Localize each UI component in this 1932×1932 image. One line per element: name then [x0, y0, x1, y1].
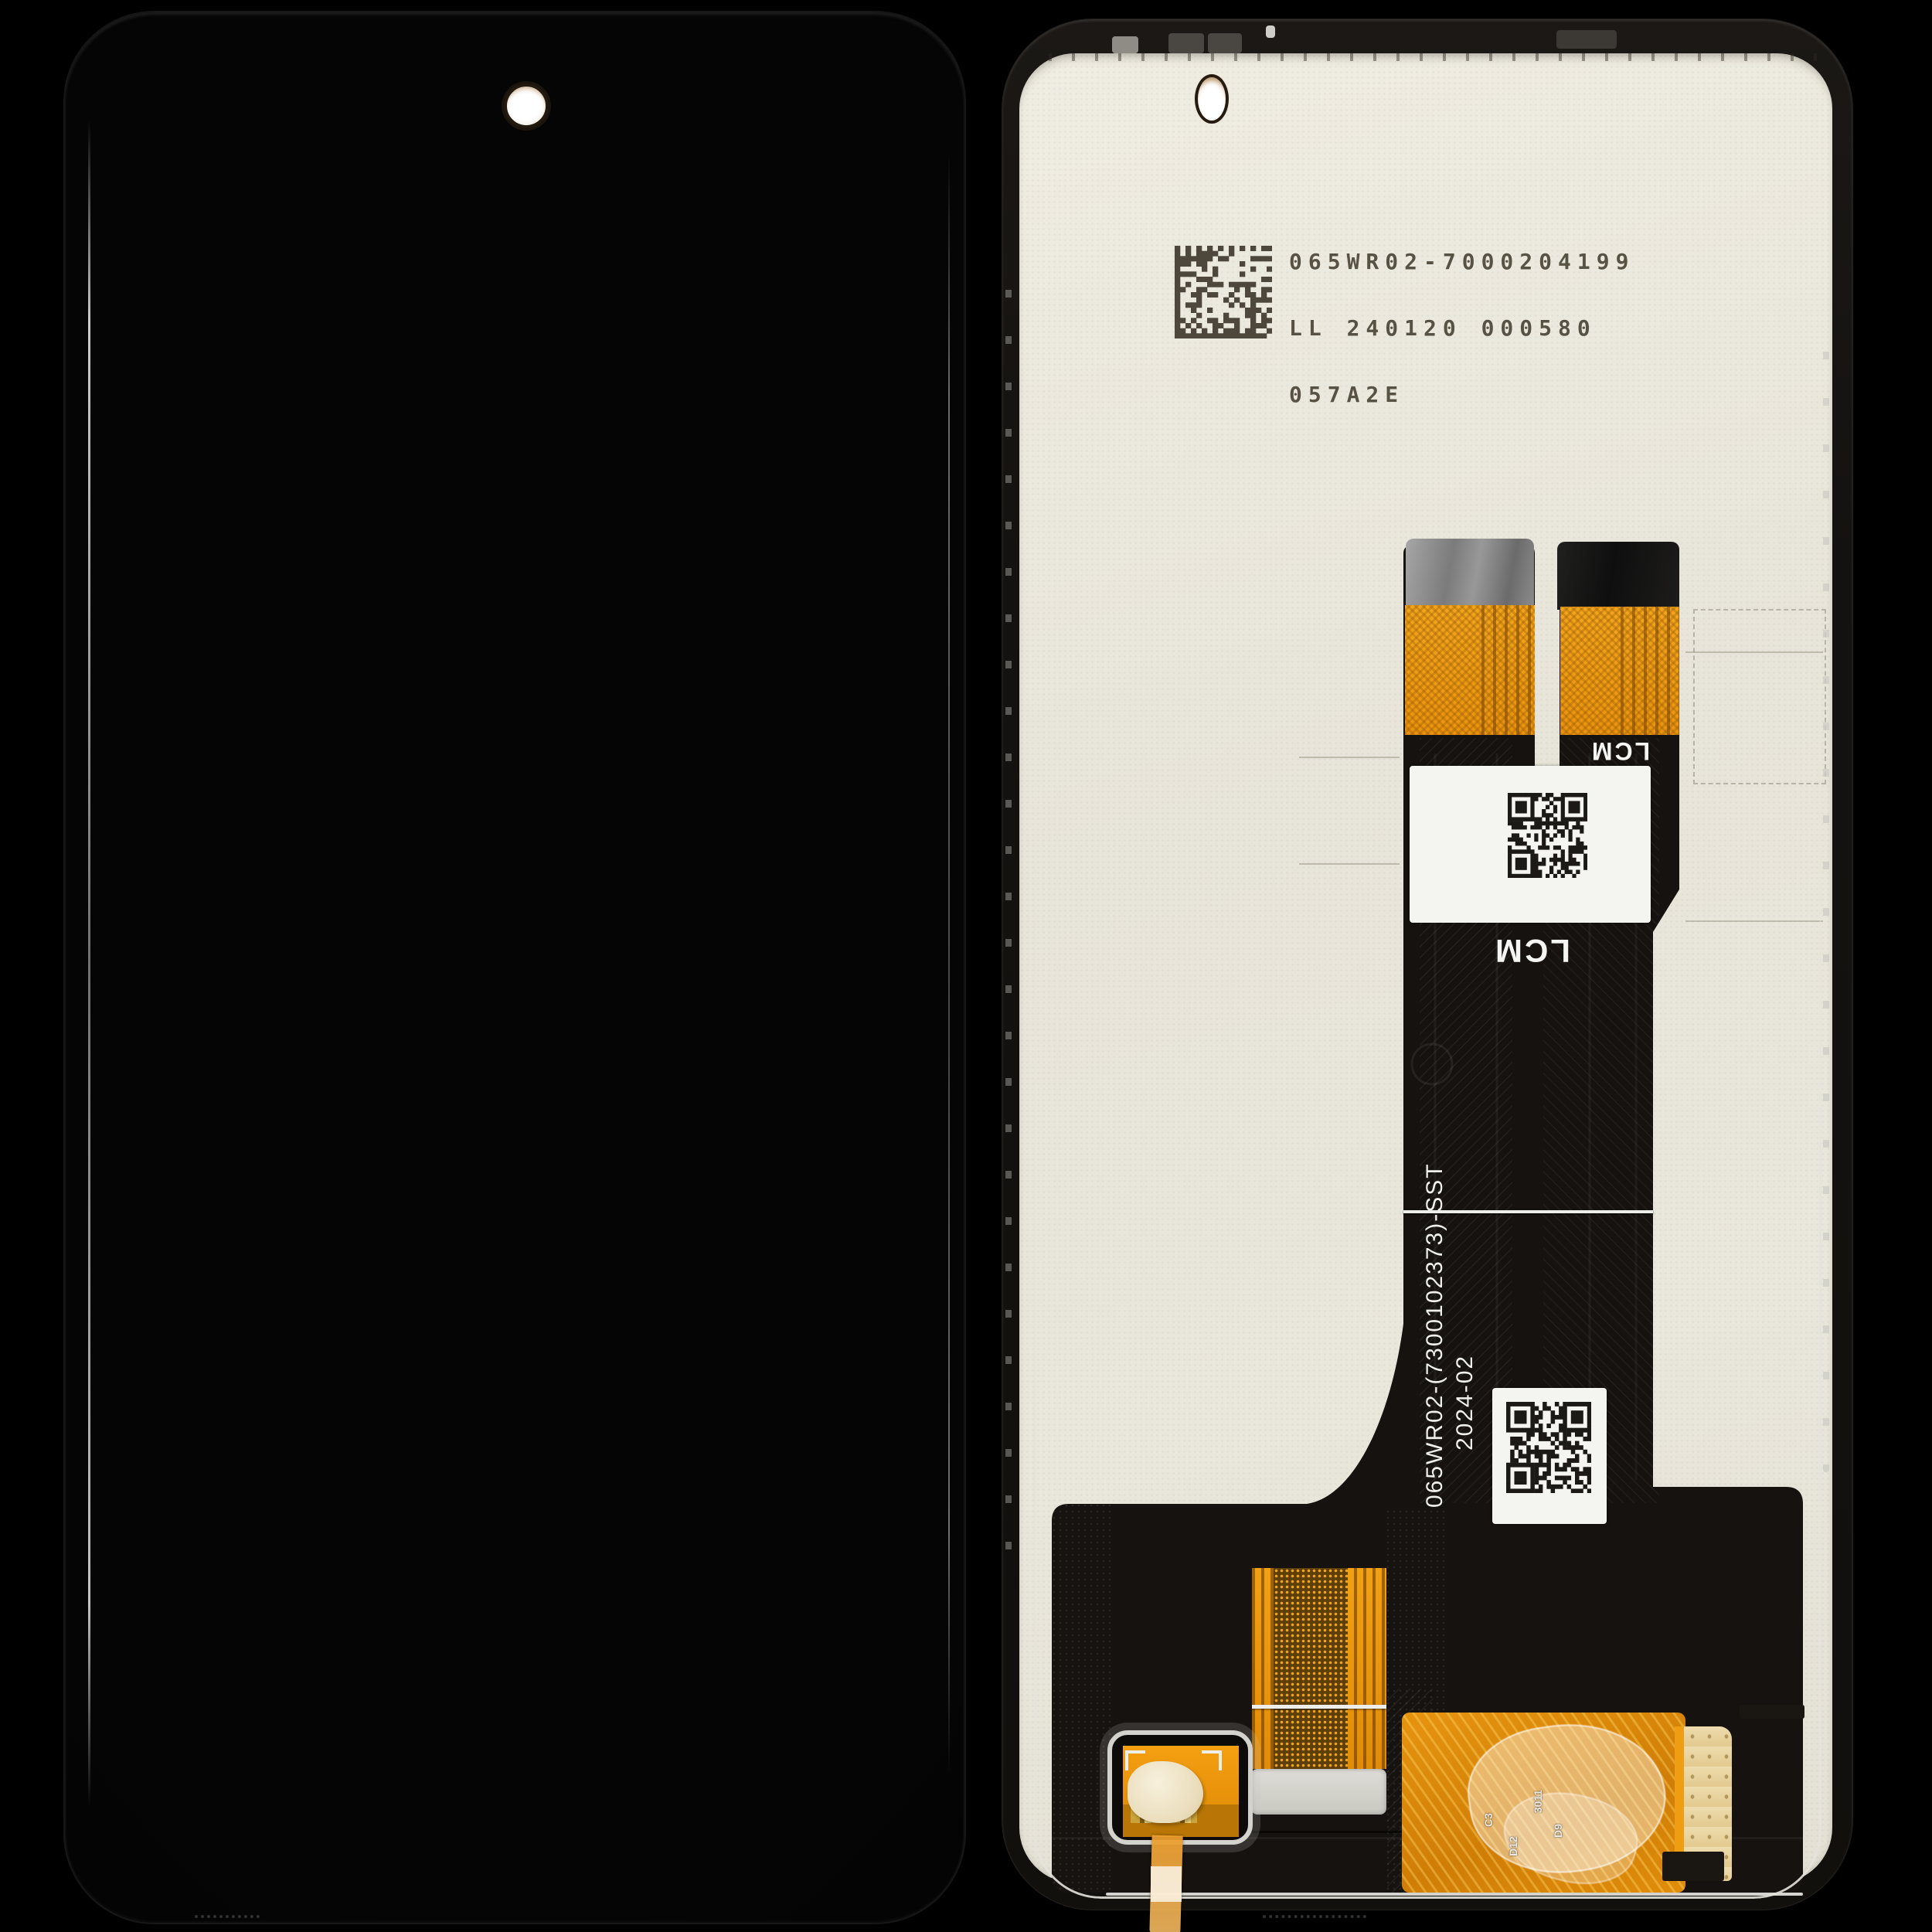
front-camera-hole-icon [504, 83, 549, 128]
flex-tail-band [1151, 1866, 1182, 1902]
lcd-back-panel: 065WR02-7000204199 LL 240120 000580 057A… [1002, 19, 1853, 1910]
right-edge-clips [1823, 313, 1829, 1472]
product-photo-lcd-assembly: 065WR02-7000204199 LL 240120 000580 057A… [0, 0, 1932, 1932]
left-edge-clips [1005, 251, 1012, 1565]
inner-silver-rim [1033, 50, 1821, 1899]
lcd-front-panel [63, 11, 966, 1924]
back-bottom-microprint [1263, 1915, 1366, 1918]
front-left-edge-highlight [88, 121, 90, 1805]
front-right-edge-highlight [948, 151, 950, 1774]
front-bottom-microprint [195, 1915, 260, 1918]
